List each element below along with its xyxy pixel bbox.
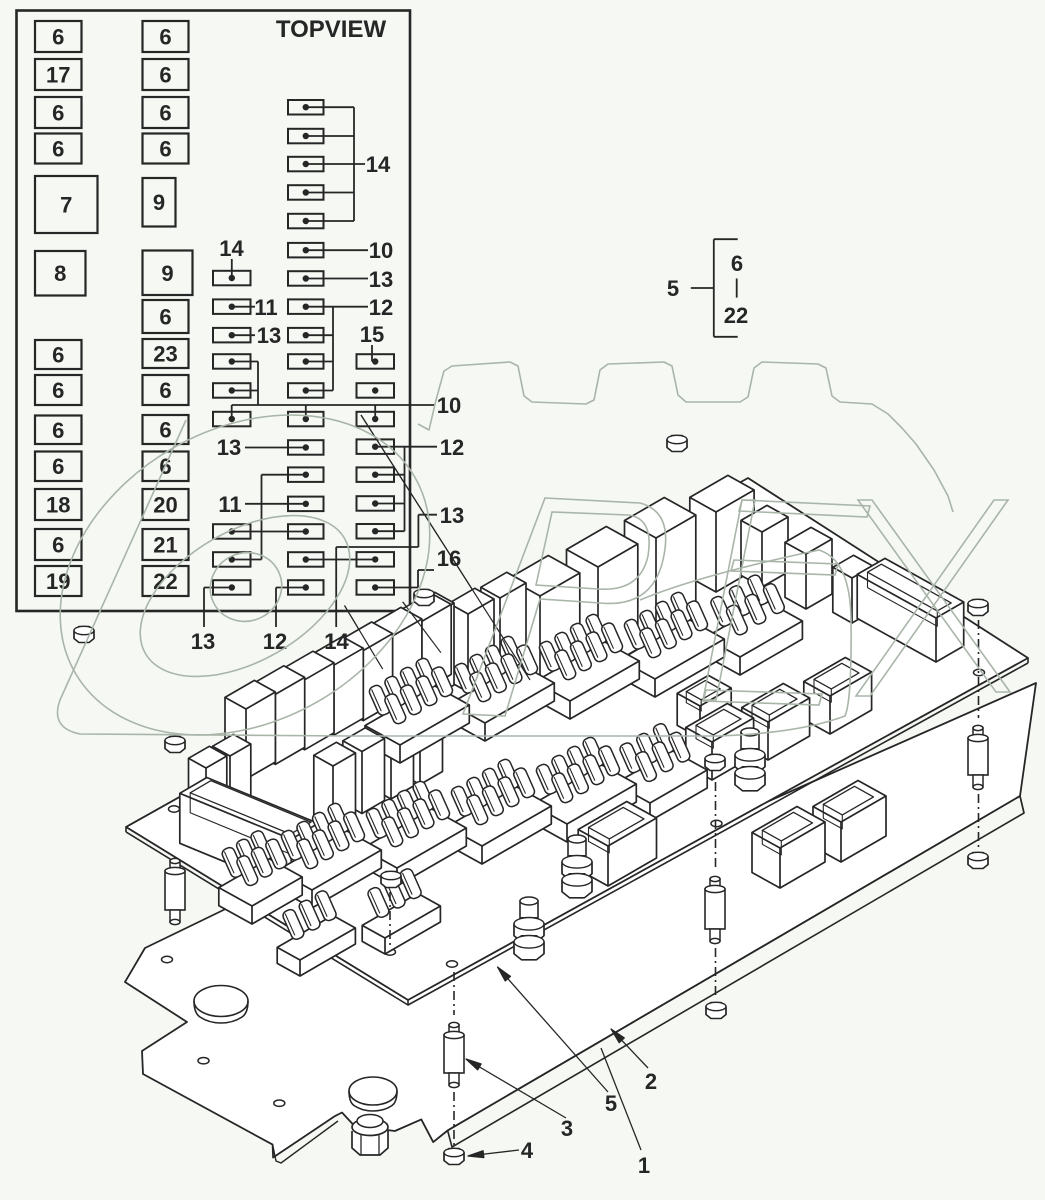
svg-text:6: 6 <box>52 137 64 162</box>
svg-text:6: 6 <box>731 251 743 276</box>
svg-text:1: 1 <box>638 1153 650 1178</box>
svg-text:11: 11 <box>254 295 277 320</box>
svg-text:9: 9 <box>153 190 165 215</box>
svg-text:23: 23 <box>153 342 177 367</box>
svg-text:6: 6 <box>52 343 64 368</box>
svg-text:13: 13 <box>191 629 215 654</box>
svg-text:6: 6 <box>52 25 64 50</box>
svg-text:13: 13 <box>257 323 281 348</box>
svg-text:5: 5 <box>605 1091 617 1116</box>
svg-text:15: 15 <box>360 322 384 347</box>
svg-text:22: 22 <box>724 303 748 328</box>
svg-text:2: 2 <box>645 1069 657 1094</box>
svg-text:10: 10 <box>437 393 461 418</box>
svg-text:6: 6 <box>159 305 171 330</box>
svg-text:6: 6 <box>159 101 171 126</box>
svg-text:6: 6 <box>159 63 171 88</box>
svg-text:7: 7 <box>60 193 72 218</box>
svg-text:6: 6 <box>52 378 64 403</box>
svg-text:14: 14 <box>324 629 349 654</box>
svg-text:14: 14 <box>366 152 391 177</box>
svg-text:9: 9 <box>161 261 173 286</box>
svg-text:TOPVIEW: TOPVIEW <box>276 16 387 43</box>
svg-text:6: 6 <box>159 137 171 162</box>
svg-text:12: 12 <box>440 435 464 460</box>
svg-text:17: 17 <box>46 63 70 88</box>
svg-text:18: 18 <box>46 493 70 518</box>
svg-text:12: 12 <box>369 295 393 320</box>
svg-text:6: 6 <box>52 418 64 443</box>
svg-text:22: 22 <box>153 569 177 594</box>
svg-text:21: 21 <box>153 533 177 558</box>
svg-text:6: 6 <box>52 101 64 126</box>
svg-text:10: 10 <box>369 238 393 263</box>
svg-text:6: 6 <box>159 25 171 50</box>
svg-text:6: 6 <box>52 454 64 479</box>
svg-text:3: 3 <box>561 1116 573 1141</box>
svg-text:8: 8 <box>54 261 66 286</box>
svg-text:13: 13 <box>369 267 393 292</box>
svg-text:13: 13 <box>217 435 241 460</box>
svg-text:20: 20 <box>153 493 177 518</box>
svg-text:11: 11 <box>218 492 241 517</box>
svg-text:5: 5 <box>667 276 679 301</box>
svg-text:6: 6 <box>159 378 171 403</box>
svg-text:6: 6 <box>52 533 64 558</box>
svg-text:14: 14 <box>219 236 244 261</box>
svg-text:6: 6 <box>159 418 171 443</box>
svg-text:4: 4 <box>521 1138 534 1163</box>
svg-text:13: 13 <box>440 503 464 528</box>
svg-text:12: 12 <box>263 629 287 654</box>
